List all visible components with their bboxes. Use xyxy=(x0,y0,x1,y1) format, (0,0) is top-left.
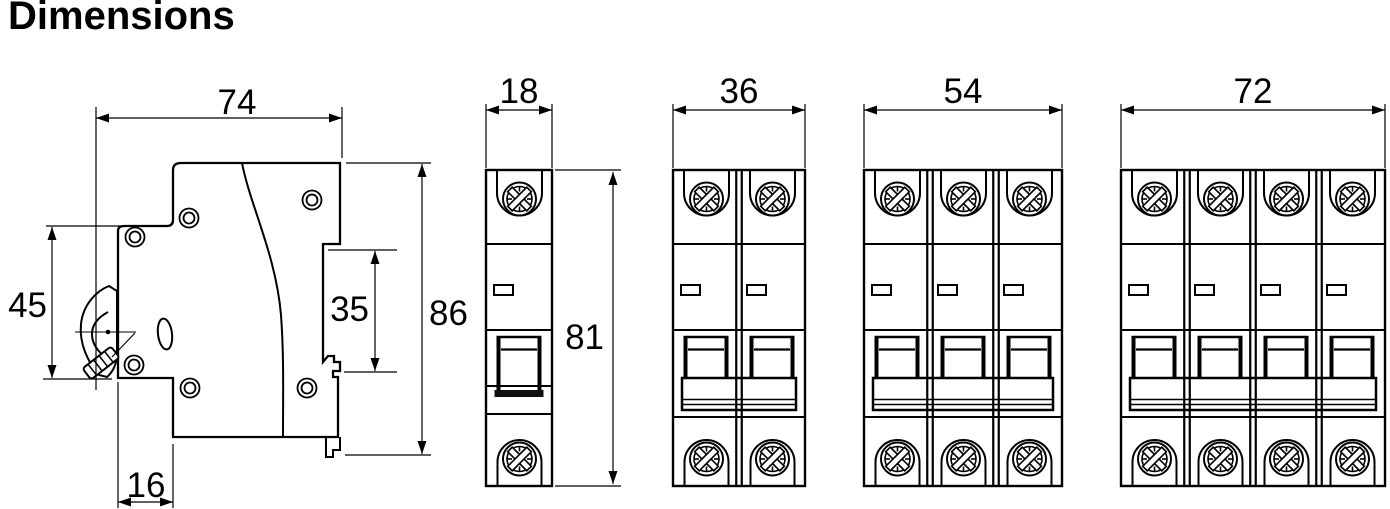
dimension-base-depth-16: 16 xyxy=(118,382,173,508)
front-view-3-pole: 54 xyxy=(864,72,1062,486)
technical-drawing-canvas: 74 45 35 xyxy=(0,0,1390,509)
dim-label-width-3-pole: 54 xyxy=(944,72,983,111)
dimensions-drawing-page: Dimensions xyxy=(0,0,1390,509)
label-window xyxy=(681,285,700,295)
breaker-body xyxy=(1121,170,1385,486)
front-view-2-pole: 36 xyxy=(673,72,805,486)
din-foot xyxy=(326,437,340,457)
label-window xyxy=(1129,285,1148,295)
label-window xyxy=(1261,285,1280,295)
label-window xyxy=(938,285,957,295)
dimension-width-74: 74 xyxy=(96,83,342,390)
dim-label-width-1-pole: 18 xyxy=(500,72,539,111)
front-view-1-pole: 1881 xyxy=(486,72,621,486)
oval-slot xyxy=(156,318,174,350)
breaker-body xyxy=(486,170,552,486)
front-view-4-pole: 72 xyxy=(1121,72,1385,486)
front-views-group: 1881365472 xyxy=(486,72,1385,486)
dim-label-height-1-pole: 81 xyxy=(565,318,604,357)
label-window xyxy=(747,285,766,295)
dimension-height-1-pole: 81 xyxy=(555,170,621,486)
side-view-drawing: 74 45 35 xyxy=(8,83,468,508)
dimension-width-4-pole: 72 xyxy=(1121,72,1385,168)
dimension-din-recess-35: 35 xyxy=(328,250,397,372)
dim-label-86: 86 xyxy=(429,294,468,333)
dim-label-width-4-pole: 72 xyxy=(1234,72,1273,111)
dim-label-16: 16 xyxy=(127,466,166,505)
label-window xyxy=(1195,285,1214,295)
dim-label-45: 45 xyxy=(8,286,47,325)
dim-label-74: 74 xyxy=(218,83,257,122)
dim-label-35: 35 xyxy=(330,290,369,329)
dimension-width-1-pole: 18 xyxy=(486,72,552,168)
breaker-body xyxy=(864,170,1062,486)
label-window xyxy=(494,285,513,295)
dimension-width-3-pole: 54 xyxy=(864,72,1062,168)
label-window xyxy=(1327,285,1346,295)
label-window xyxy=(872,285,891,295)
side-body-outline xyxy=(118,163,340,437)
dimension-width-2-pole: 36 xyxy=(673,72,805,168)
housing-split-curve xyxy=(242,163,283,437)
rivet-icons xyxy=(125,191,322,398)
breaker-body xyxy=(673,170,805,486)
label-window xyxy=(1004,285,1023,295)
dim-label-width-2-pole: 36 xyxy=(720,72,759,111)
